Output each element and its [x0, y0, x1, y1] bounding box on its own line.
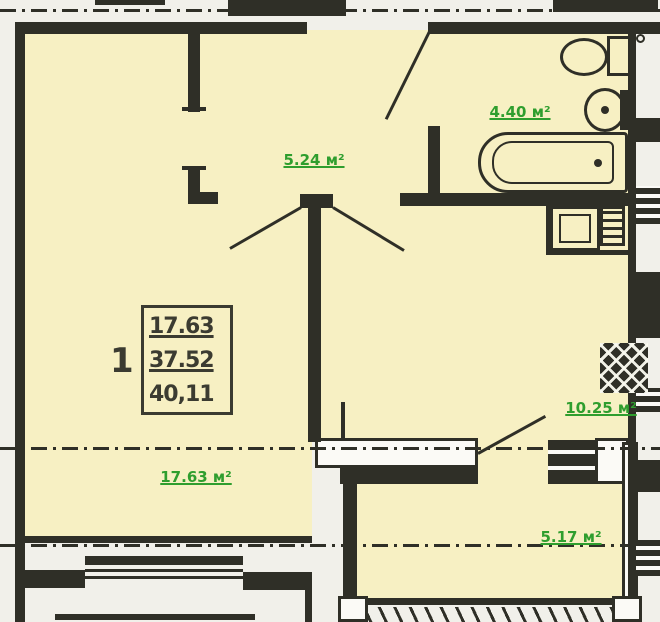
living-area-value: 17.63 — [149, 310, 230, 344]
kitchen-balcony-wall — [315, 438, 478, 468]
living-room-floor — [22, 442, 312, 538]
partition-wall-upper — [188, 30, 200, 112]
plumbing-riser — [636, 34, 645, 43]
kitchen-sink-inner — [559, 214, 591, 243]
area-label-hallway: 5.24 м² — [283, 151, 344, 169]
bathtub-drain — [594, 159, 602, 167]
washbasin-drain — [601, 106, 609, 114]
stove-symbol — [600, 206, 625, 246]
balcony-corner-post — [338, 596, 368, 622]
exterior-wall-block — [636, 272, 660, 338]
area-label-kitchen: 10.25 м² — [565, 399, 637, 417]
wall-top-right — [428, 22, 660, 34]
area-label-living: 17.63 м² — [160, 468, 232, 486]
living-bottom-pier-right — [243, 572, 312, 590]
balcony-glazing — [357, 607, 613, 622]
upper-plan-fragment — [95, 0, 165, 5]
lower-balcony-rail — [55, 614, 255, 620]
balcony-left-wall — [343, 466, 357, 602]
counter-edge — [546, 250, 630, 255]
opening-jamb-mark — [182, 166, 206, 170]
right-exterior-wall — [628, 22, 636, 612]
axis-tick — [341, 402, 345, 440]
apartment-info-box: 17.63 37.52 40,11 — [141, 305, 233, 415]
exterior-wall-block — [636, 460, 660, 492]
area-label-balcony: 5.17 м² — [540, 528, 601, 546]
living-window-glass — [85, 556, 243, 565]
wall-top-left — [15, 22, 307, 34]
overall-area-value: 40,11 — [149, 378, 230, 412]
center-partition-wall — [308, 194, 321, 442]
balcony-corner-post — [612, 596, 642, 622]
upper-plan-fragment — [553, 0, 658, 12]
living-bottom-pier-left — [15, 570, 85, 588]
vent-shaft-symbol — [600, 343, 648, 393]
floor-plan: 17.63 37.52 40,11 1 5.24 м² 4.40 м² 17.6… — [0, 0, 660, 622]
wall-left — [15, 22, 25, 622]
balcony-top-wall — [340, 468, 478, 484]
balcony-bottom-wall — [355, 598, 615, 605]
area-label-bathroom: 4.40 м² — [489, 103, 550, 121]
opening-jamb-mark — [182, 107, 206, 111]
kitchen-window — [548, 440, 595, 484]
living-window-line — [85, 569, 243, 572]
living-bottom-wall-line — [15, 536, 312, 543]
exterior-wall-hatch — [636, 540, 660, 576]
bathroom-left-wall — [428, 126, 440, 206]
counter-edge-left — [546, 206, 551, 255]
living-window-line — [85, 576, 243, 579]
upper-plan-fragment — [228, 0, 346, 16]
washbasin-bracket — [620, 90, 628, 130]
lower-balcony-right-edge — [305, 585, 312, 622]
exterior-wall-block — [636, 118, 660, 142]
toilet-tank — [607, 36, 631, 76]
partition-corner — [188, 192, 218, 204]
total-area-value: 37.52 — [149, 344, 230, 378]
toilet-bowl — [560, 38, 608, 76]
exterior-wall-hatch — [636, 186, 660, 224]
unit-number: 1 — [110, 341, 134, 381]
